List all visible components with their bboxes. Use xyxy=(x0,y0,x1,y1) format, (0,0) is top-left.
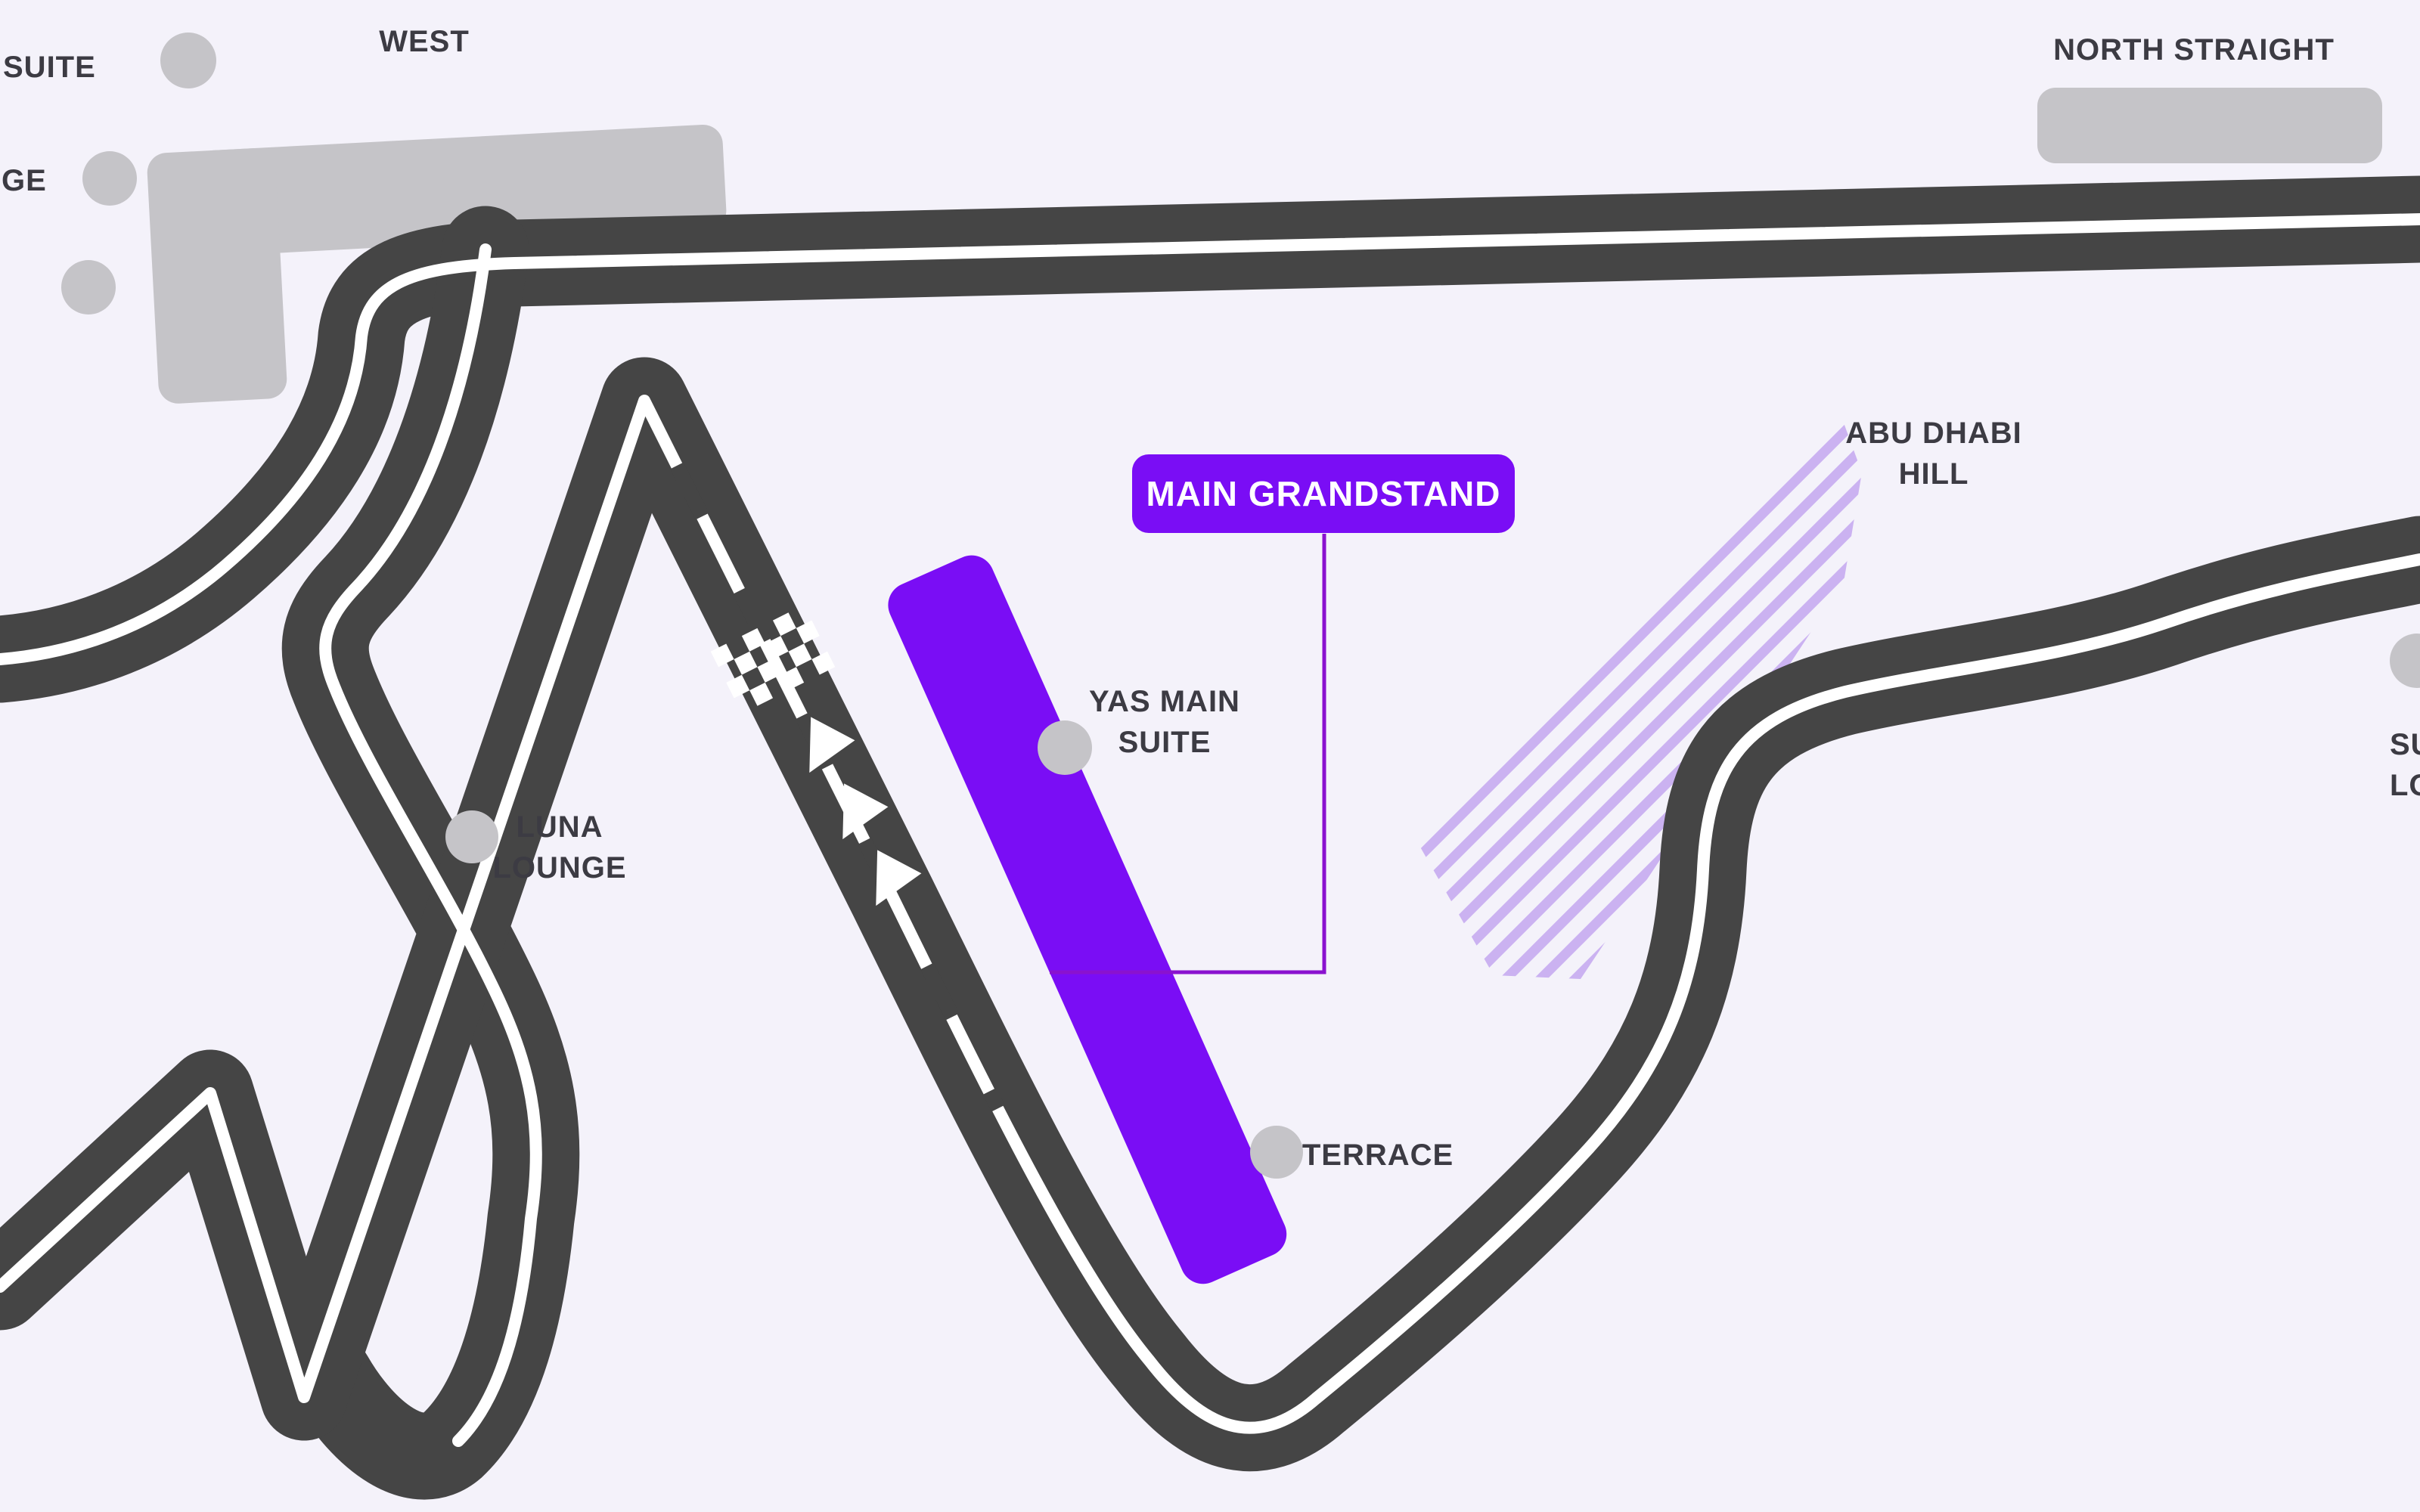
marker-right-edge-icon[interactable] xyxy=(2390,634,2420,688)
label-lounge-cut: GE xyxy=(2,160,47,201)
circuit-map: { "theme": { "bg": "#f4f2fa", "track": "… xyxy=(0,0,2420,1512)
marker-extra-icon[interactable] xyxy=(61,260,116,314)
north-straight-grandstand[interactable] xyxy=(2037,88,2382,163)
label-right-cut-line1: SU xyxy=(2390,728,2420,761)
label-north-straight: NORTH STRAIGHT xyxy=(2053,29,2335,70)
label-luna-line2: LOUNGE xyxy=(492,851,626,885)
marker-luna-lounge-icon[interactable] xyxy=(445,810,498,863)
label-abu-dhabi-hill: ABU DHABI HILL xyxy=(1845,413,2021,494)
label-right-cut: SU LO xyxy=(2390,724,2420,806)
label-luna-line1: LUNA xyxy=(516,810,603,844)
marker-terrace-icon[interactable] xyxy=(1250,1126,1303,1179)
marker-suite-icon[interactable] xyxy=(160,33,216,88)
label-suite-cut: SUITE xyxy=(3,47,96,88)
main-grandstand-button[interactable]: MAIN GRANDSTAND xyxy=(1132,454,1515,533)
label-yas-main-suite: YAS MAIN SUITE xyxy=(1089,681,1240,763)
label-hill-line1: ABU DHABI xyxy=(1845,417,2021,450)
marker-yas-main-suite-icon[interactable] xyxy=(1038,720,1092,775)
label-hill-line2: HILL xyxy=(1899,457,1969,491)
label-yas-main-line1: YAS MAIN xyxy=(1089,685,1240,718)
label-yas-main-line2: SUITE xyxy=(1118,726,1212,759)
label-west: WEST xyxy=(379,21,470,62)
marker-lounge-icon[interactable] xyxy=(82,151,137,206)
label-right-cut-line2: LO xyxy=(2390,769,2420,802)
label-terrace: TERRACE xyxy=(1302,1135,1454,1176)
label-luna-lounge: LUNA LOUNGE xyxy=(492,807,626,888)
